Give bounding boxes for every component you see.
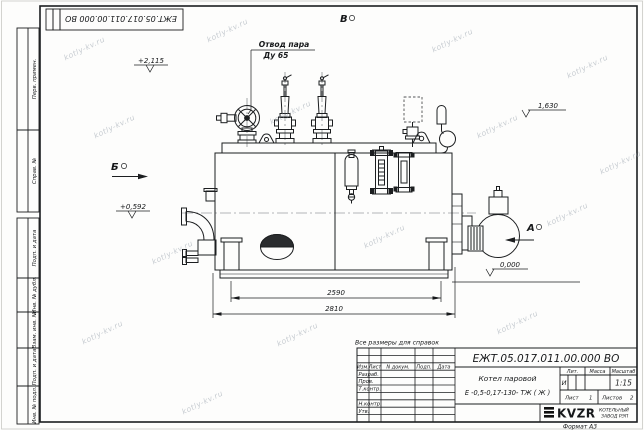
- format-note: Формат А3: [563, 424, 597, 430]
- lifting-lug-right: [413, 132, 430, 143]
- top-left-stamp-number: ЕЖТ.05.017.011.00.000 ВО: [65, 14, 177, 23]
- pressure-gauge-outline: [404, 97, 422, 122]
- view-top-letter: В: [340, 14, 348, 25]
- stamp-inv-podl: Инв. № подл.: [32, 386, 38, 423]
- drawing-sheet: Перв. примен. Справ. № Подп. и дата Инв.…: [0, 0, 644, 430]
- burner: [462, 187, 520, 258]
- smoke-elbow: [182, 208, 217, 255]
- dim-2590: 2590: [231, 289, 441, 300]
- elevation-mid-left-value: +0,592: [120, 203, 146, 211]
- tb-hdr-dokum: N докум.: [386, 364, 409, 370]
- reference-note: Все размеры для справок: [355, 340, 439, 347]
- blueprint-canvas: Перв. примен. Справ. № Подп. и дата Инв.…: [0, 0, 644, 430]
- gauge-glass-1: [371, 147, 393, 195]
- support-leg-left: [221, 238, 242, 270]
- tb-row-tkontr: Т.контр.: [359, 387, 381, 393]
- tb-sheet-num: 1: [589, 396, 592, 402]
- boiler-platform: [222, 143, 436, 153]
- lifting-lug-left: [259, 134, 274, 143]
- tb-sheet-word: Лист: [564, 396, 580, 402]
- tb-sheets-word: Листов: [601, 396, 622, 402]
- dim-2590-value: 2590: [327, 289, 345, 297]
- elevation-top-left-value: +2,115: [138, 57, 164, 65]
- pressure-gauge-group: [403, 97, 456, 153]
- stamp-perv-primen: Перв. примен.: [32, 59, 38, 99]
- support-leg-right: [426, 238, 447, 270]
- safety-valve-1: [275, 75, 296, 143]
- stamp-vzam-inv: Взам. инв. №: [32, 311, 38, 348]
- tb-hdr-izm: Изм.: [357, 364, 369, 370]
- water-column: [345, 150, 358, 204]
- elevation-zero-value: 0,000: [500, 261, 521, 269]
- elevation-zero: 0,000: [486, 261, 528, 276]
- tb-product-line2: Е -0,5-0,17-130- ТЖ ( Ж ): [465, 389, 550, 397]
- view-label-left: Б: [111, 162, 148, 179]
- safety-valve-2: [312, 75, 333, 143]
- tb-product-line1: Котел паровой: [479, 374, 537, 383]
- view-labels: В Б А: [111, 14, 542, 243]
- elevation-mid-left: +0,592: [116, 203, 150, 218]
- elevation-top-left: +2,115: [134, 57, 168, 72]
- stamp-sprav-no: Справ. №: [32, 157, 38, 184]
- elevation-right: 1,630: [522, 102, 566, 117]
- steam-outlet-valve: [217, 106, 260, 144]
- view-right-letter: А: [526, 223, 535, 234]
- tb-row-utv: Утв.: [359, 409, 370, 415]
- kvzr-logo-text: KVZR: [557, 407, 596, 421]
- tb-company-line2: ЗАВОД РЭП: [601, 414, 629, 420]
- tb-sheets-num: 2: [630, 396, 634, 402]
- stamp-podp-data-1: Подп. и дата: [32, 230, 38, 267]
- manhole: [261, 235, 294, 260]
- tb-hdr-mass: Масса: [590, 369, 606, 375]
- view-label-right: А: [505, 223, 542, 243]
- view-left-letter: Б: [111, 162, 119, 173]
- tb-row-razrab: Разраб.: [359, 372, 379, 378]
- base-rail: [220, 270, 448, 278]
- stamp-podp-data-2: Подп. и дата: [32, 349, 38, 386]
- tb-hdr-data: Дата: [437, 364, 451, 370]
- boiler-drawing: [182, 72, 581, 282]
- tb-doc-number: ЕЖТ.05.017.011.00.000 ВО: [473, 353, 620, 365]
- dimensions: 2590 2810: [213, 267, 455, 318]
- dim-2810: 2810: [213, 305, 455, 316]
- tb-lit-value: И: [562, 379, 567, 387]
- tb-company-line1: КОТЕЛЬНЫЙ: [599, 407, 629, 414]
- boiler-body: [215, 153, 452, 270]
- gauge-glass-2: [394, 153, 414, 193]
- tb-hdr-list: Лист: [368, 364, 383, 370]
- dim-2810-value: 2810: [325, 305, 343, 313]
- tb-hdr-lit: Лит.: [566, 369, 579, 375]
- elevation-marks: +2,115 1,630 +0,592 0,000: [116, 57, 566, 276]
- tb-scale-value: 1:15: [615, 379, 632, 388]
- view-label-top: В: [340, 14, 355, 25]
- stamp-inv-dubl: Инв. № дубл.: [32, 277, 38, 314]
- margin-stamp-labels: Перв. примен. Справ. № Подп. и дата Инв.…: [32, 59, 38, 424]
- siphon-loop: [440, 131, 456, 147]
- steam-outlet-dn: Ду 65: [263, 51, 289, 60]
- elevation-right-value: 1,630: [538, 102, 559, 110]
- rear-tube-plate: [452, 194, 462, 254]
- burner-motor: [468, 226, 483, 251]
- tb-row-nkontr: Н.контр.: [359, 401, 382, 407]
- kvzr-logo: KVZR: [544, 407, 596, 421]
- steam-outlet-label: Отвод пара: [259, 40, 310, 49]
- tb-row-prov: Пров.: [359, 379, 374, 385]
- tb-hdr-scale: Масштаб: [612, 369, 636, 375]
- tb-hdr-podp: Подп.: [416, 364, 431, 370]
